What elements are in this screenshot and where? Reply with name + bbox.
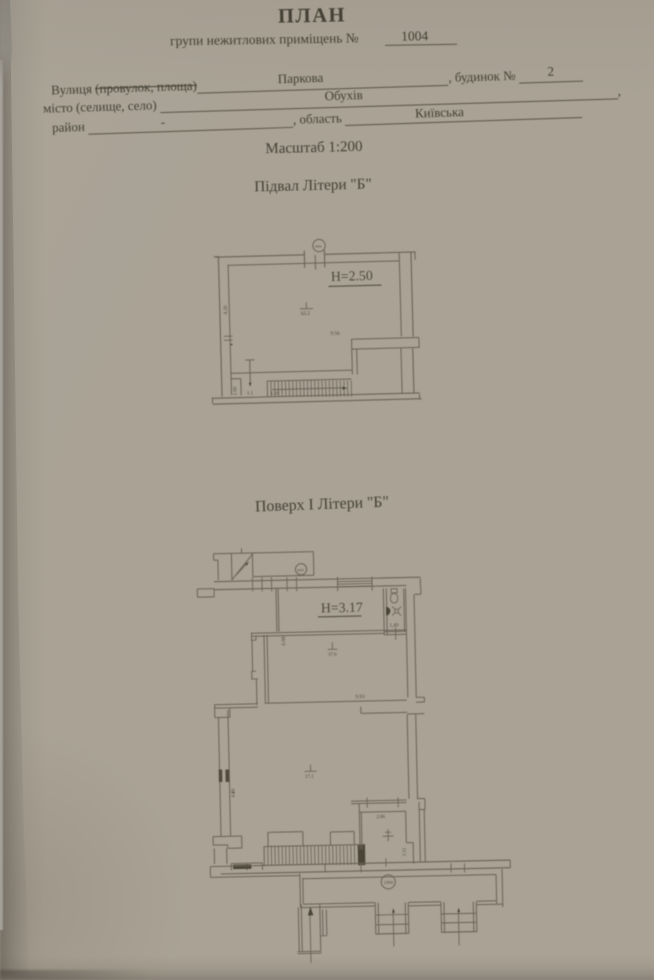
svg-text:Н=3.17: Н=3.17 xyxy=(321,600,363,616)
svg-text:9.56: 9.56 xyxy=(330,331,340,337)
svg-text:1004: 1004 xyxy=(384,880,394,885)
svg-text:1.00: 1.00 xyxy=(233,386,238,395)
svg-text:17.1: 17.1 xyxy=(305,775,314,780)
svg-text:Н=2.50: Н=2.50 xyxy=(331,268,373,284)
svg-text:1,49: 1,49 xyxy=(389,623,399,629)
svg-text:62.2: 62.2 xyxy=(301,311,311,317)
svg-text:3.11: 3.11 xyxy=(403,847,408,856)
svg-text:1.1: 1.1 xyxy=(247,391,254,396)
svg-text:37.6: 37.6 xyxy=(328,653,337,658)
svg-text:поч: поч xyxy=(315,243,321,248)
svg-text:поч: поч xyxy=(297,567,303,572)
svg-text:6.08: 6.08 xyxy=(281,636,287,646)
svg-text:2,86: 2,86 xyxy=(376,815,385,820)
svg-text:4.26: 4.26 xyxy=(223,305,229,315)
svg-text:1.10: 1.10 xyxy=(270,392,279,397)
svg-text:9.93: 9.93 xyxy=(355,694,365,700)
